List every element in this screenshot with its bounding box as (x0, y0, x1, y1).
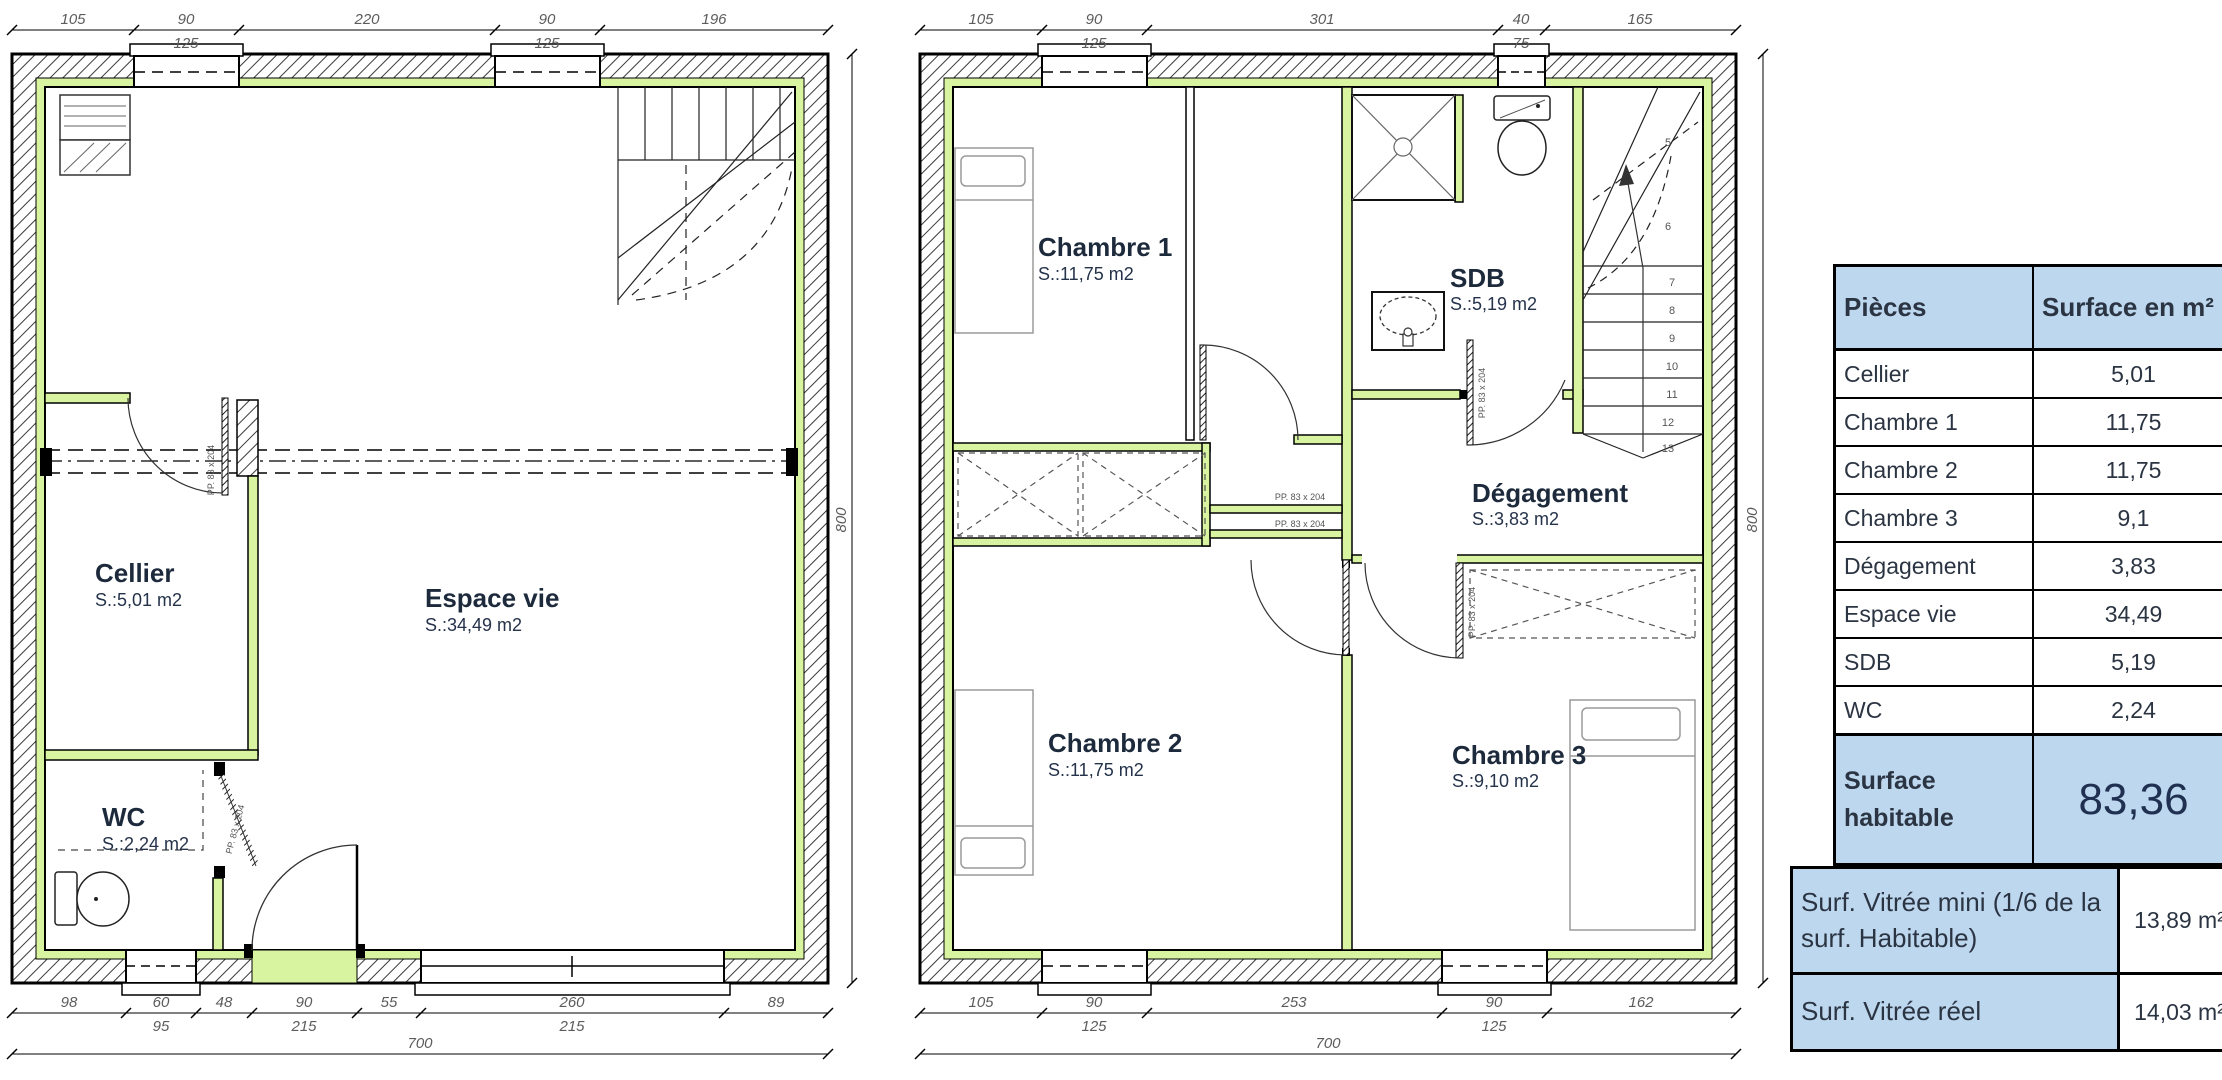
svg-text:105: 105 (60, 11, 86, 28)
surface-table: Pièces Surface en m² Cellier 5,01 Chambr… (1833, 264, 2222, 866)
bed (1570, 700, 1695, 930)
row-value: 34,49 (2033, 590, 2222, 638)
table-row: Dégagement 3,83 (1835, 542, 2222, 590)
svg-text:800: 800 (833, 507, 850, 533)
surface-total-row: Surface habitable 83,36 (1835, 735, 2222, 865)
svg-text:6: 6 (1665, 221, 1671, 233)
svg-text:196: 196 (701, 11, 727, 28)
svg-text:7: 7 (1669, 277, 1675, 289)
row-label: Chambre 1 (1835, 398, 2034, 446)
row-label: Espace vie (1835, 590, 2034, 638)
appliance (60, 95, 130, 175)
room-area-espace-vie: S.:34,49 m2 (425, 615, 522, 635)
svg-text:215: 215 (290, 1018, 317, 1035)
door-size-label: PP. 83 x 204 (1275, 492, 1325, 502)
svg-text:95: 95 (153, 1018, 170, 1035)
svg-text:260: 260 (558, 994, 585, 1011)
glazing-real-value: 14,03 m² (2119, 974, 2222, 1051)
svg-text:60: 60 (153, 994, 170, 1011)
glazing-min-value: 13,89 m² (2119, 868, 2222, 974)
door-size-label: PP. 83 x 204 (206, 445, 216, 495)
room-label-chambre2: Chambre 2 (1048, 728, 1182, 758)
room-label-cellier: Cellier (95, 558, 175, 588)
svg-text:800: 800 (1744, 507, 1761, 533)
room-area-cellier: S.:5,01 m2 (95, 590, 182, 610)
ground-floor-plan: Cellier S.:5,01 m2 Espace vie S.:34,49 m… (12, 44, 828, 995)
svg-text:125: 125 (1481, 1018, 1507, 1035)
row-label: Cellier (1835, 350, 2034, 399)
shower (1352, 95, 1463, 202)
row-label: Chambre 3 (1835, 494, 2034, 542)
svg-text:220: 220 (353, 11, 380, 28)
glazing-table: Surf. Vitrée mini (1/6 de la surf. Habit… (1790, 866, 2222, 1052)
room-area-chambre3: S.:9,10 m2 (1452, 771, 1539, 791)
header-pieces: Pièces (1835, 266, 2034, 350)
row-label: Dégagement (1835, 542, 2034, 590)
svg-text:90: 90 (1086, 994, 1103, 1011)
svg-text:105: 105 (968, 994, 994, 1011)
total-value: 83,36 (2033, 735, 2222, 865)
room-area-degagement: S.:3,83 m2 (1472, 509, 1559, 529)
surface-table-header: Pièces Surface en m² (1835, 266, 2222, 350)
svg-text:700: 700 (1315, 1035, 1341, 1052)
room-area-chambre2: S.:11,75 m2 (1048, 760, 1144, 780)
table-row: SDB 5,19 (1835, 638, 2222, 686)
svg-text:55: 55 (381, 994, 398, 1011)
svg-text:125: 125 (1081, 35, 1107, 52)
table-row: Espace vie 34,49 (1835, 590, 2222, 638)
total-label: Surface habitable (1835, 735, 2034, 865)
svg-text:89: 89 (768, 994, 785, 1011)
header-surface: Surface en m² (2033, 266, 2222, 350)
toilet (55, 872, 129, 926)
svg-text:105: 105 (968, 11, 994, 28)
glazing-row: Surf. Vitrée mini (1/6 de la surf. Habit… (1792, 868, 2222, 974)
table-row: Cellier 5,01 (1835, 350, 2222, 399)
room-label-espace-vie: Espace vie (425, 583, 559, 613)
room-label-chambre3: Chambre 3 (1452, 740, 1586, 770)
svg-text:253: 253 (1280, 994, 1307, 1011)
row-value: 5,01 (2033, 350, 2222, 399)
svg-text:90: 90 (1086, 11, 1103, 28)
row-value: 11,75 (2033, 446, 2222, 494)
door-size-label: PP. 83 x 204 (1275, 519, 1325, 529)
room-label-chambre1: Chambre 1 (1038, 232, 1172, 262)
table-row: WC 2,24 (1835, 686, 2222, 735)
row-label: WC (1835, 686, 2034, 735)
svg-text:125: 125 (1081, 1018, 1107, 1035)
table-row: Chambre 3 9,1 (1835, 494, 2222, 542)
wc-window (122, 950, 200, 995)
row-label: Chambre 2 (1835, 446, 2034, 494)
door-size-label: PP. 83 x 204 (1477, 368, 1487, 418)
window (1438, 950, 1551, 995)
bed (955, 148, 1033, 333)
svg-text:98: 98 (61, 994, 78, 1011)
svg-text:162: 162 (1628, 994, 1654, 1011)
door-size-label: PP. 83 x 204 (1467, 587, 1477, 637)
svg-text:48: 48 (216, 994, 233, 1011)
svg-text:165: 165 (1627, 11, 1653, 28)
window (1038, 950, 1151, 995)
svg-text:90: 90 (539, 11, 556, 28)
upper-floor-plan: 5 6 7 8 9 10 11 12 13 Chambre 1 S.:11,75… (920, 44, 1736, 995)
room-area-sdb: S.:5,19 m2 (1450, 294, 1537, 314)
room-label-wc: WC (102, 802, 146, 832)
room-area-chambre1: S.:11,75 m2 (1038, 264, 1134, 284)
svg-text:301: 301 (1309, 11, 1334, 28)
svg-text:9: 9 (1669, 333, 1675, 345)
svg-text:10: 10 (1666, 361, 1678, 373)
glazing-real-label: Surf. Vitrée réel (1792, 974, 2119, 1051)
svg-text:90: 90 (1486, 994, 1503, 1011)
room-label-degagement: Dégagement (1472, 478, 1628, 508)
svg-text:90: 90 (178, 11, 195, 28)
svg-text:215: 215 (558, 1018, 585, 1035)
glazing-row: Surf. Vitrée réel 14,03 m² (1792, 974, 2222, 1051)
svg-text:8: 8 (1669, 305, 1675, 317)
table-row: Chambre 1 11,75 (1835, 398, 2222, 446)
room-area-wc: S.:2,24 m2 (102, 834, 189, 854)
sink (1372, 292, 1444, 350)
svg-text:13: 13 (1662, 443, 1674, 455)
svg-text:5: 5 (1665, 137, 1671, 149)
svg-text:12: 12 (1662, 417, 1674, 429)
row-value: 9,1 (2033, 494, 2222, 542)
room-label-sdb: SDB (1450, 263, 1505, 293)
row-value: 5,19 (2033, 638, 2222, 686)
glazing-min-label: Surf. Vitrée mini (1/6 de la surf. Habit… (1792, 868, 2119, 974)
svg-text:90: 90 (296, 994, 313, 1011)
svg-text:125: 125 (534, 35, 560, 52)
svg-text:11: 11 (1666, 389, 1677, 401)
svg-text:125: 125 (173, 35, 199, 52)
toilet (1494, 96, 1550, 175)
svg-text:75: 75 (1513, 35, 1530, 52)
svg-text:40: 40 (1513, 11, 1530, 28)
table-row: Chambre 2 11,75 (1835, 446, 2222, 494)
row-label: SDB (1835, 638, 2034, 686)
bed (955, 690, 1033, 875)
row-value: 11,75 (2033, 398, 2222, 446)
row-value: 2,24 (2033, 686, 2222, 735)
svg-text:700: 700 (407, 1035, 433, 1052)
bay-window (415, 950, 730, 995)
row-value: 3,83 (2033, 542, 2222, 590)
